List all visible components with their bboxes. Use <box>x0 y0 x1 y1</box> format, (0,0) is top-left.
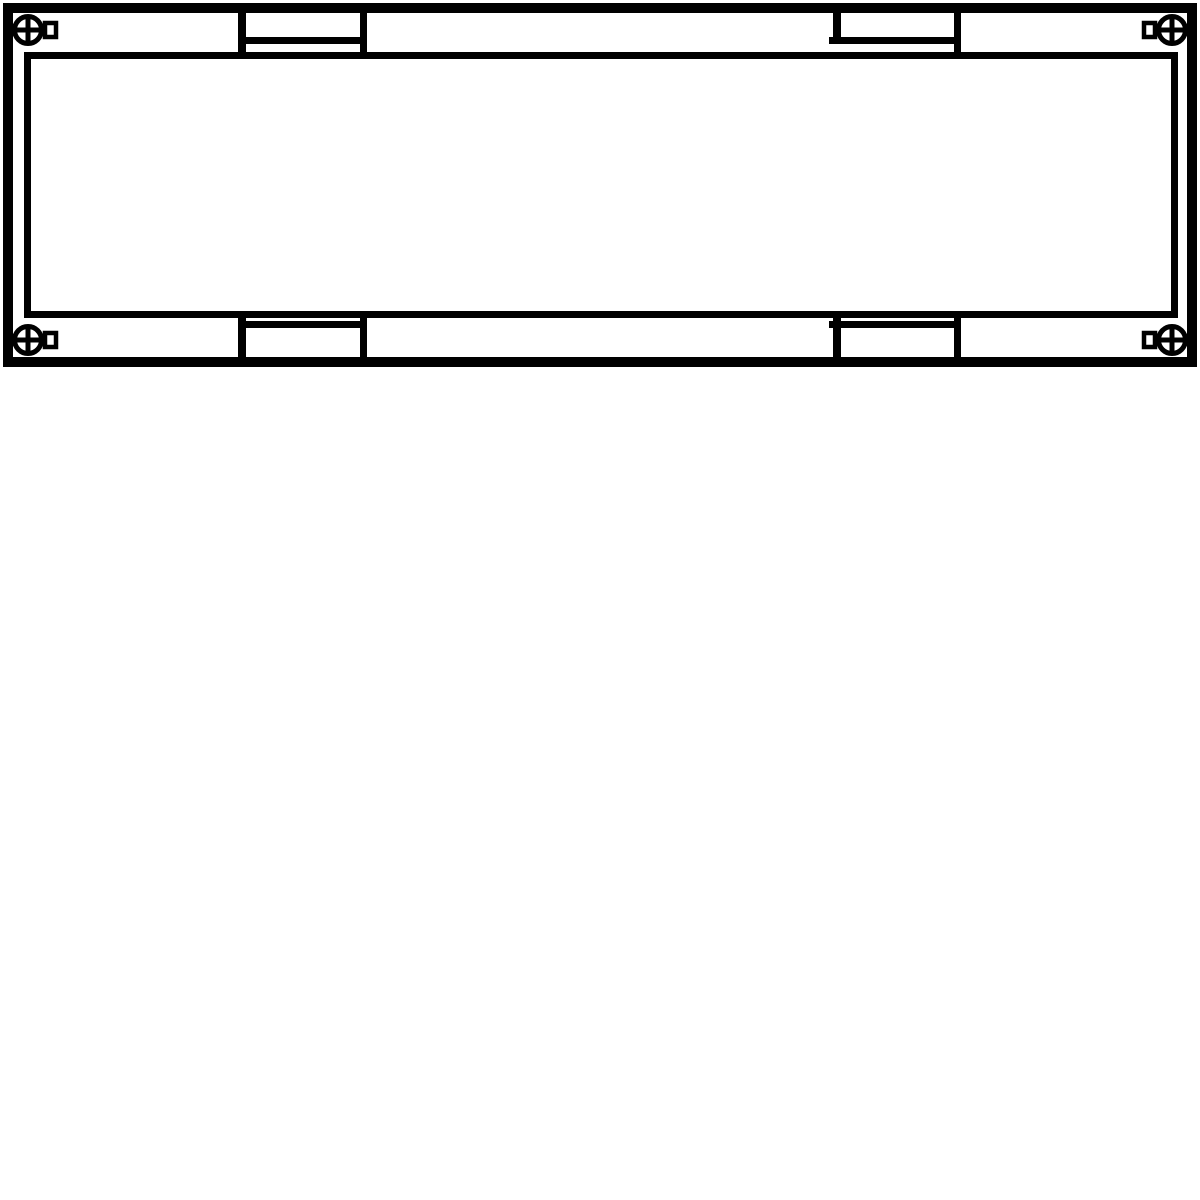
clip-bottom-left <box>242 315 364 360</box>
screw-bottom-left <box>15 327 57 354</box>
square-tab-icon <box>45 23 56 37</box>
drawing-canvas <box>0 0 1200 1200</box>
clip-bottom-right <box>829 313 958 360</box>
outer-frame <box>8 8 1192 362</box>
panel-technical-drawing <box>0 0 1200 1200</box>
inner-panel <box>28 56 1175 315</box>
clip-top-left <box>242 10 364 55</box>
square-tab-icon <box>1144 23 1155 37</box>
line-art-group <box>8 8 1192 362</box>
square-tab-icon <box>45 333 56 347</box>
screw-top-right <box>1144 17 1186 44</box>
screw-bottom-right <box>1144 327 1186 354</box>
screw-top-left <box>15 17 57 44</box>
clip-top-right <box>829 10 958 55</box>
square-tab-icon <box>1144 333 1155 347</box>
